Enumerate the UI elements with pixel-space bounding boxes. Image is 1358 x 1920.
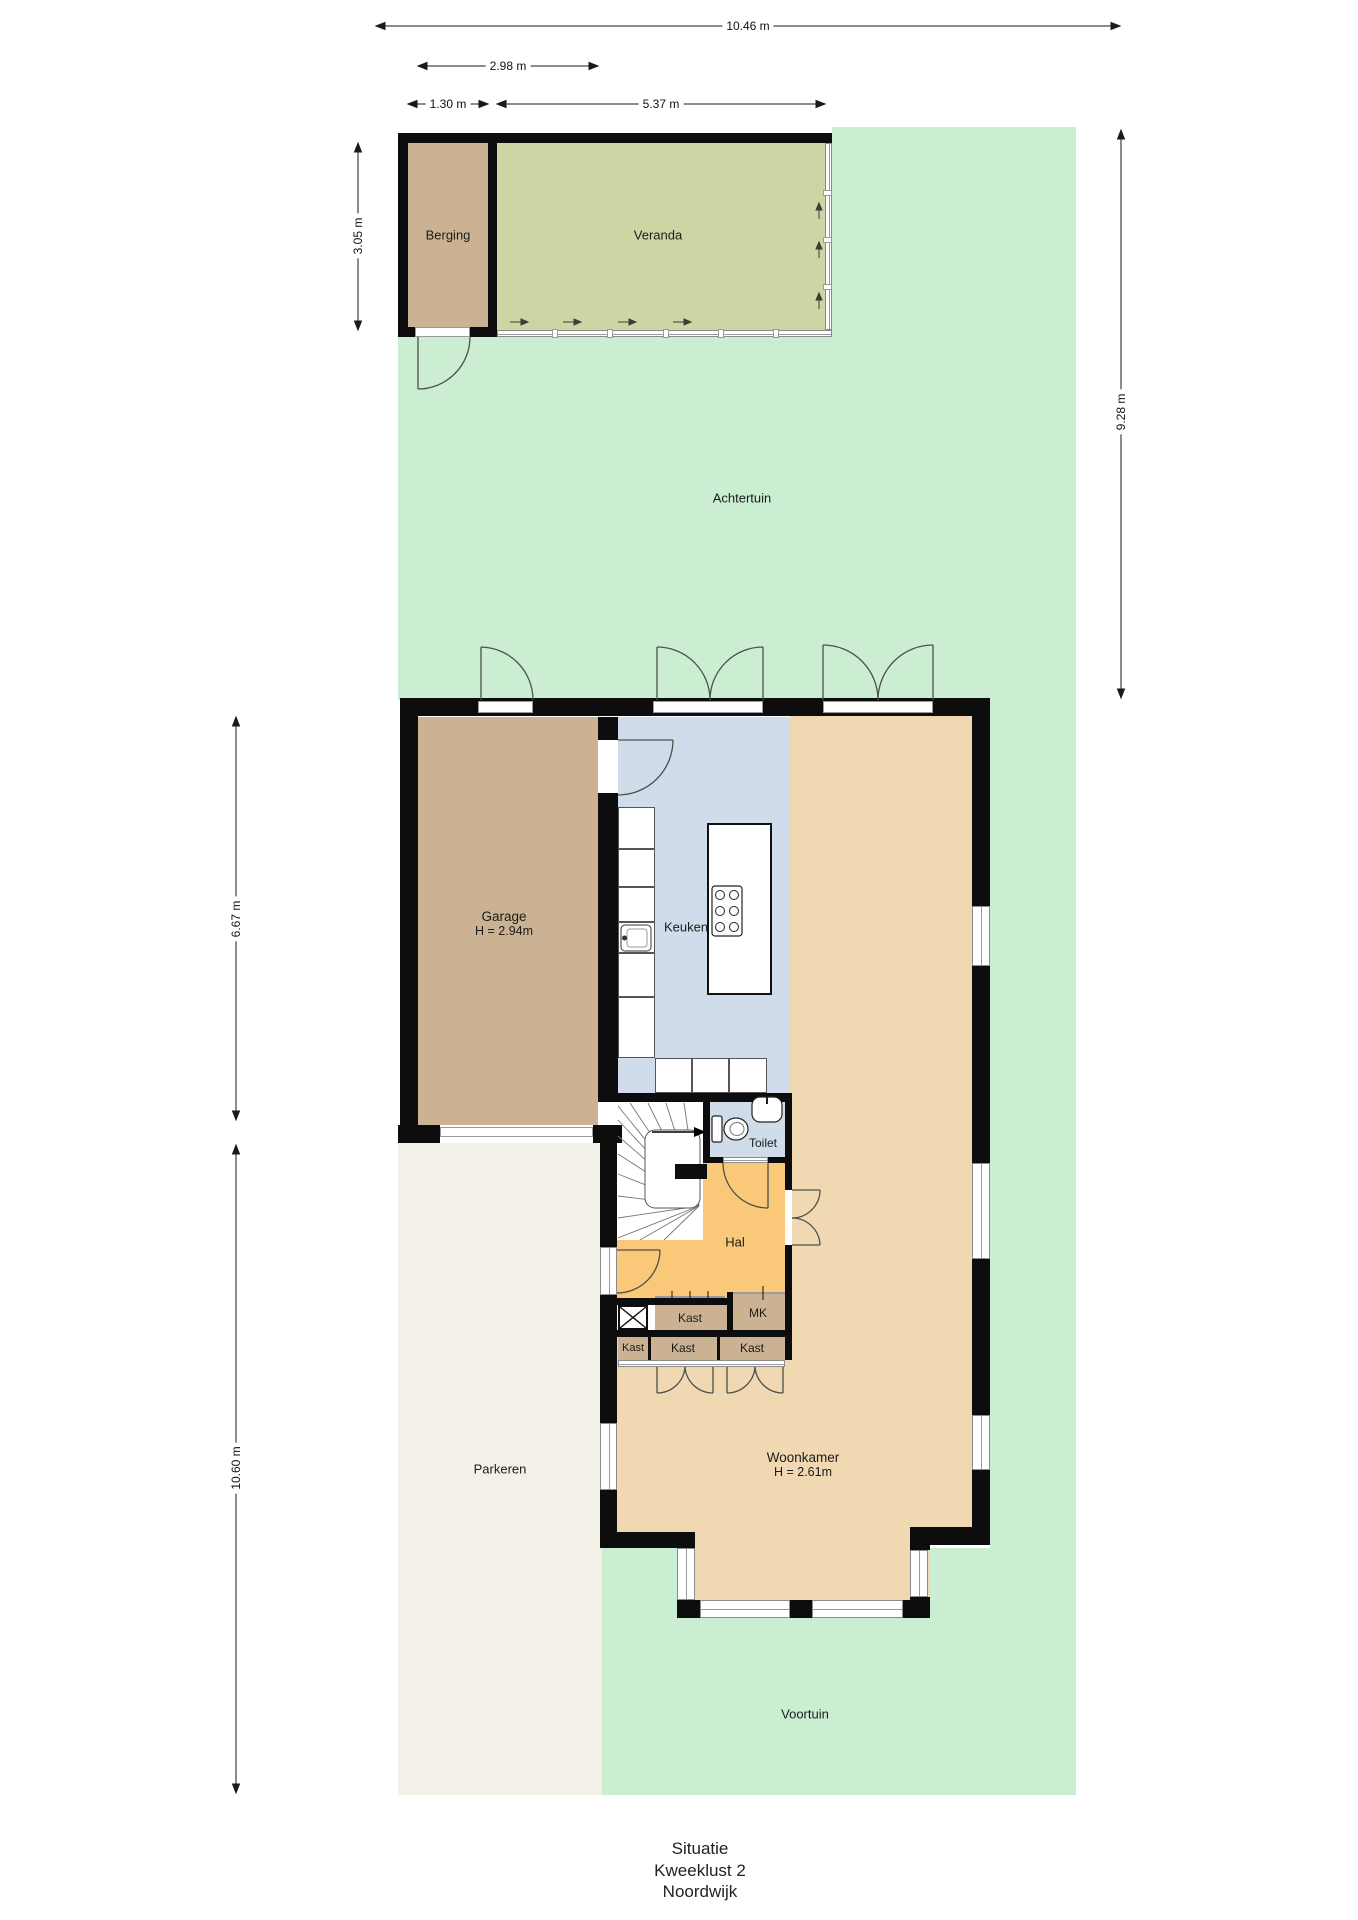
wall-right-c bbox=[972, 1259, 990, 1415]
wall-kast-bottom bbox=[617, 1330, 792, 1337]
kast-front-line bbox=[618, 1360, 785, 1367]
plan-title-address: Kweeklust 2 bbox=[654, 1860, 746, 1882]
kast-div-b bbox=[717, 1337, 720, 1360]
wall-garage-corner-l bbox=[398, 1125, 440, 1143]
label-veranda: Veranda bbox=[634, 228, 682, 243]
room-toilet bbox=[707, 1102, 792, 1163]
label-woonkamer-name: Woonkamer bbox=[767, 1450, 840, 1465]
wall-left-b bbox=[600, 1295, 617, 1423]
window-right-2 bbox=[972, 1163, 990, 1259]
dim-veranda-width: 5.37 m bbox=[639, 97, 684, 111]
label-kast-mid: Kast bbox=[671, 1341, 695, 1355]
wall-hal-right-b bbox=[785, 1245, 792, 1337]
dim-garage-depth: 6.67 m bbox=[229, 897, 243, 942]
dim-overall-width: 10.46 m bbox=[722, 19, 773, 33]
wall-hal-bottom bbox=[608, 1298, 728, 1305]
berging-door-sill bbox=[415, 327, 470, 337]
window-bay-right bbox=[910, 1550, 928, 1597]
wall-toilet-left bbox=[703, 1102, 710, 1163]
window-divider bbox=[773, 329, 779, 338]
wall-left-a bbox=[600, 1125, 617, 1247]
label-mk: MK bbox=[749, 1306, 767, 1320]
wall-garage-keuken-b bbox=[598, 793, 618, 1102]
toilet-door-opening bbox=[723, 1157, 768, 1163]
label-garage-height: H = 2.94m bbox=[475, 924, 533, 939]
dim-berging-depth: 3.05 m bbox=[351, 214, 365, 259]
mk-front-line bbox=[733, 1292, 785, 1294]
hal-woonkamer-door-opening bbox=[785, 1190, 792, 1245]
dim-garage-width: 2.98 m bbox=[486, 59, 531, 73]
label-kast-top: Kast bbox=[678, 1311, 702, 1325]
window-bay-bottom-l bbox=[700, 1600, 790, 1618]
keuken-doors-sill bbox=[653, 701, 763, 713]
region-achtertuin-right bbox=[832, 127, 1076, 337]
kitchen-cabinet bbox=[618, 953, 655, 997]
dim-achtertuin-depth: 9.28 m bbox=[1114, 390, 1128, 435]
window-divider bbox=[823, 284, 832, 290]
label-garage-name: Garage bbox=[475, 909, 533, 924]
wall-garage-keuken-a bbox=[598, 717, 618, 740]
front-door-sill bbox=[600, 1247, 617, 1295]
kitchen-cabinet-sink bbox=[618, 922, 655, 953]
kitchen-cabinet bbox=[618, 849, 655, 887]
plan-title: Situatie Kweeklust 2 Noordwijk bbox=[654, 1838, 746, 1903]
window-right-3 bbox=[972, 1415, 990, 1470]
window-bay-bottom-r bbox=[812, 1600, 903, 1618]
label-hal: Hal bbox=[725, 1235, 745, 1250]
wall-bay-r-b bbox=[910, 1597, 930, 1618]
window-divider bbox=[607, 329, 613, 338]
wall-right-a bbox=[972, 698, 990, 906]
wall-left-garage bbox=[400, 698, 418, 1143]
label-voortuin: Voortuin bbox=[781, 1707, 829, 1722]
window-divider bbox=[552, 329, 558, 338]
wall-hal-right-a bbox=[785, 1102, 792, 1190]
wall-right-d bbox=[972, 1470, 990, 1527]
dim-berging-width: 1.30 m bbox=[426, 97, 471, 111]
label-woonkamer: Woonkamer H = 2.61m bbox=[767, 1450, 840, 1480]
wall-right-b bbox=[972, 966, 990, 1163]
kitchen-cabinet bbox=[729, 1058, 767, 1093]
kitchen-cabinet bbox=[618, 997, 655, 1058]
floorplan-canvas: 10.46 m 2.98 m 1.30 m 5.37 m 3.05 m 9.28… bbox=[0, 0, 1358, 1920]
plan-title-type: Situatie bbox=[654, 1838, 746, 1860]
kitchen-cabinet bbox=[655, 1058, 692, 1093]
region-garden-right-strip bbox=[990, 700, 1076, 1548]
garage-keuken-door-opening bbox=[598, 740, 618, 793]
garage-door-top-sill bbox=[478, 701, 533, 713]
window-left bbox=[600, 1423, 617, 1490]
wall-bay-pier bbox=[790, 1600, 812, 1618]
label-woonkamer-height: H = 2.61m bbox=[767, 1465, 840, 1480]
window-divider bbox=[718, 329, 724, 338]
wall-step-right bbox=[910, 1527, 990, 1545]
kitchen-cabinet bbox=[618, 887, 655, 922]
woonkamer-doors-sill bbox=[823, 701, 933, 713]
window-divider bbox=[823, 237, 832, 243]
room-stairs bbox=[617, 1102, 707, 1240]
label-kast-right: Kast bbox=[740, 1341, 764, 1355]
kitchen-cabinet bbox=[692, 1058, 729, 1093]
label-toilet: Toilet bbox=[749, 1136, 777, 1150]
label-kast-left: Kast bbox=[622, 1342, 644, 1354]
window-divider bbox=[663, 329, 669, 338]
garage-overhead-door bbox=[440, 1127, 593, 1137]
region-achtertuin-main bbox=[398, 337, 1076, 700]
window-bay-left bbox=[677, 1548, 695, 1600]
label-keuken: Keuken bbox=[664, 920, 708, 935]
kast-div-c bbox=[785, 1337, 792, 1360]
kast-div-a bbox=[648, 1337, 651, 1360]
dim-front-depth: 10.60 m bbox=[229, 1442, 243, 1493]
shaft-box bbox=[618, 1305, 648, 1330]
label-achtertuin: Achtertuin bbox=[713, 491, 772, 506]
wall-bay-corner-l bbox=[677, 1600, 700, 1618]
wall-keuken-bottom bbox=[598, 1093, 792, 1102]
kitchen-cabinet bbox=[618, 807, 655, 849]
label-garage: Garage H = 2.94m bbox=[475, 909, 533, 939]
kitchen-island bbox=[707, 823, 772, 995]
plan-title-city: Noordwijk bbox=[654, 1881, 746, 1903]
label-parkeren: Parkeren bbox=[474, 1462, 527, 1477]
window-right-1 bbox=[972, 906, 990, 966]
kast-rail-line bbox=[655, 1296, 725, 1298]
wall-bottom-left bbox=[600, 1532, 695, 1548]
window-divider bbox=[823, 190, 832, 196]
label-berging: Berging bbox=[426, 228, 471, 243]
wall-toilet-bottom-l bbox=[707, 1157, 723, 1163]
